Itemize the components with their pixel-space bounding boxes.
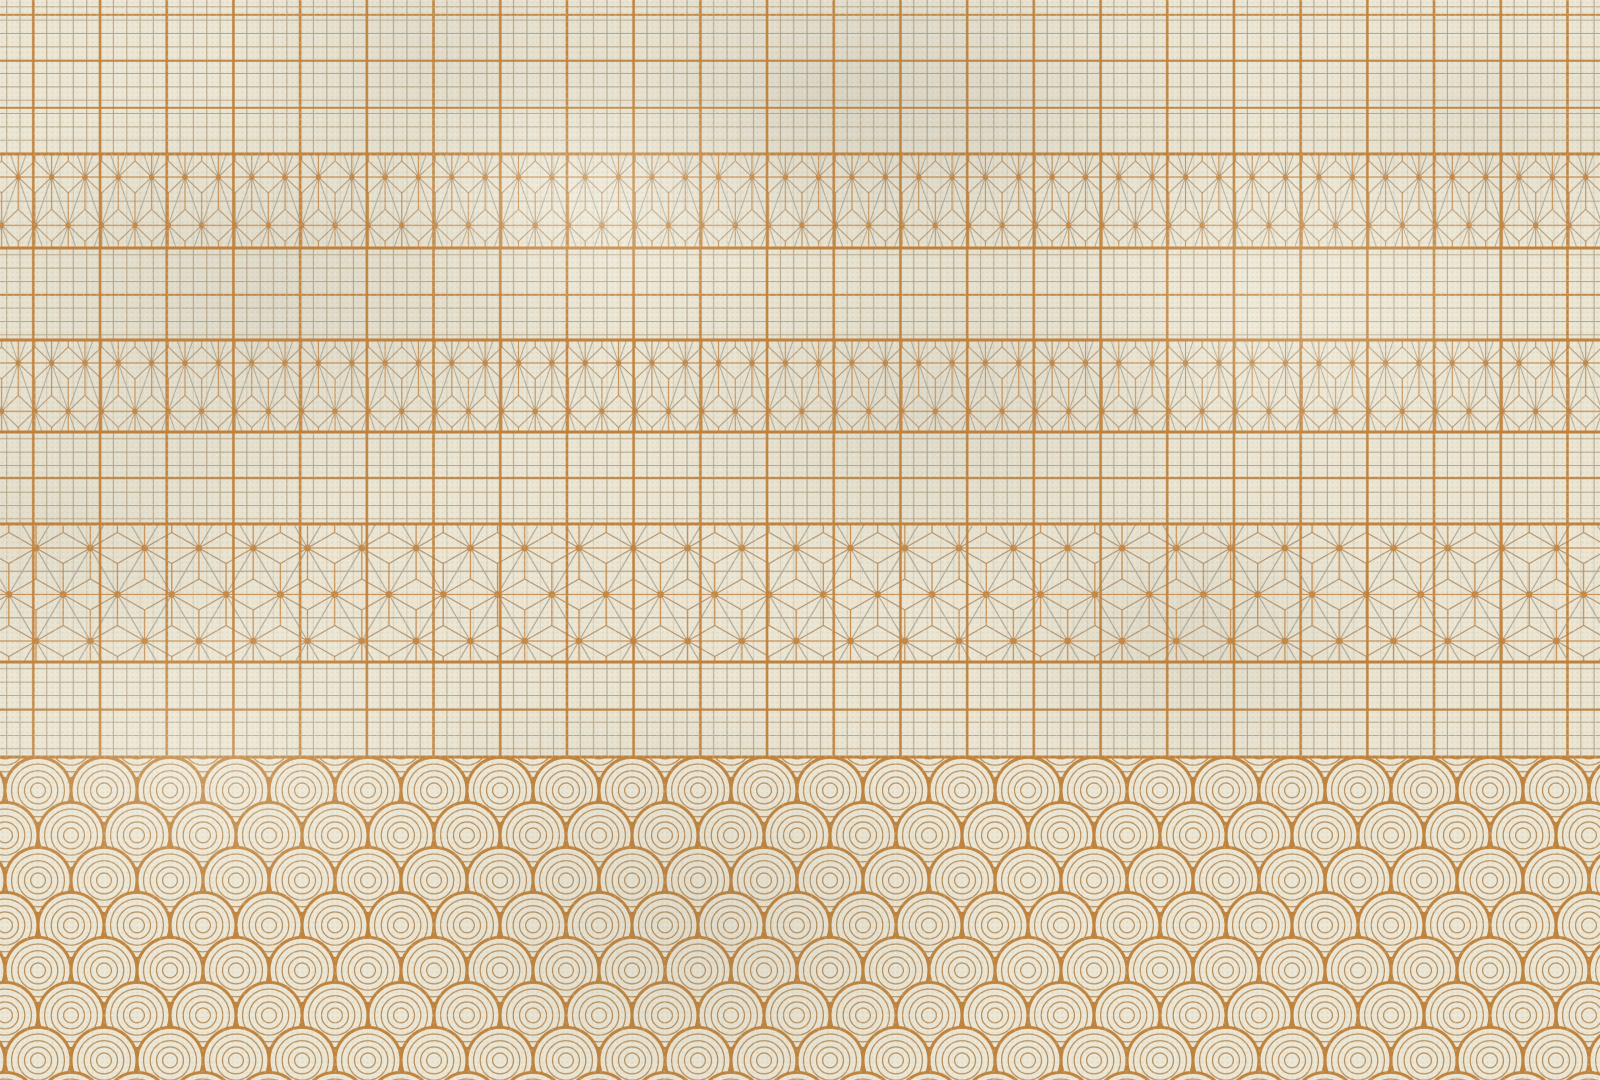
band-boundary-line <box>0 431 1600 434</box>
koushi-grid-band-2 <box>0 248 1600 340</box>
band-boundary-line <box>0 661 1600 664</box>
thick-vertical-grid-overlay <box>0 0 1600 1080</box>
paper-texture-overlay <box>0 0 1600 1080</box>
koushi-grid-band-1 <box>0 0 1600 154</box>
paper-texture-blotches <box>0 0 1600 1080</box>
band-boundary-line <box>0 247 1600 250</box>
fine-vertical-grid-overlay-svg <box>0 0 1600 757</box>
fine-vertical-grid-overlay <box>0 0 1600 1080</box>
band-boundary-line <box>0 523 1600 526</box>
grid-heavy-horizontal-line <box>0 14 1600 16</box>
grid-heavy-horizontal-line <box>0 477 1600 479</box>
seigaiha-wave-band <box>0 757 1600 1080</box>
asanoha-large-band <box>0 524 1600 662</box>
thick-vertical-grid-overlay-svg <box>0 0 1600 757</box>
koushi-grid-band-4 <box>0 662 1600 757</box>
grid-heavy-horizontal-line <box>0 294 1600 296</box>
band-boundary-line <box>0 339 1600 342</box>
paper-grain <box>0 0 1600 1080</box>
washi-pattern-artwork <box>0 0 1600 1080</box>
grid-heavy-horizontal-line <box>0 106 1600 108</box>
band-divider-lines <box>0 0 1600 1080</box>
band-boundary-line <box>0 153 1600 156</box>
koushi-grid-band-3 <box>0 432 1600 524</box>
asanoha-small-band-2 <box>0 340 1600 432</box>
grid-heavy-horizontal-line <box>0 708 1600 710</box>
band-boundary-line <box>0 756 1600 759</box>
asanoha-small-band-1 <box>0 154 1600 248</box>
grid-heavy-horizontal-line <box>0 60 1600 62</box>
pattern-bands <box>0 0 1600 1080</box>
